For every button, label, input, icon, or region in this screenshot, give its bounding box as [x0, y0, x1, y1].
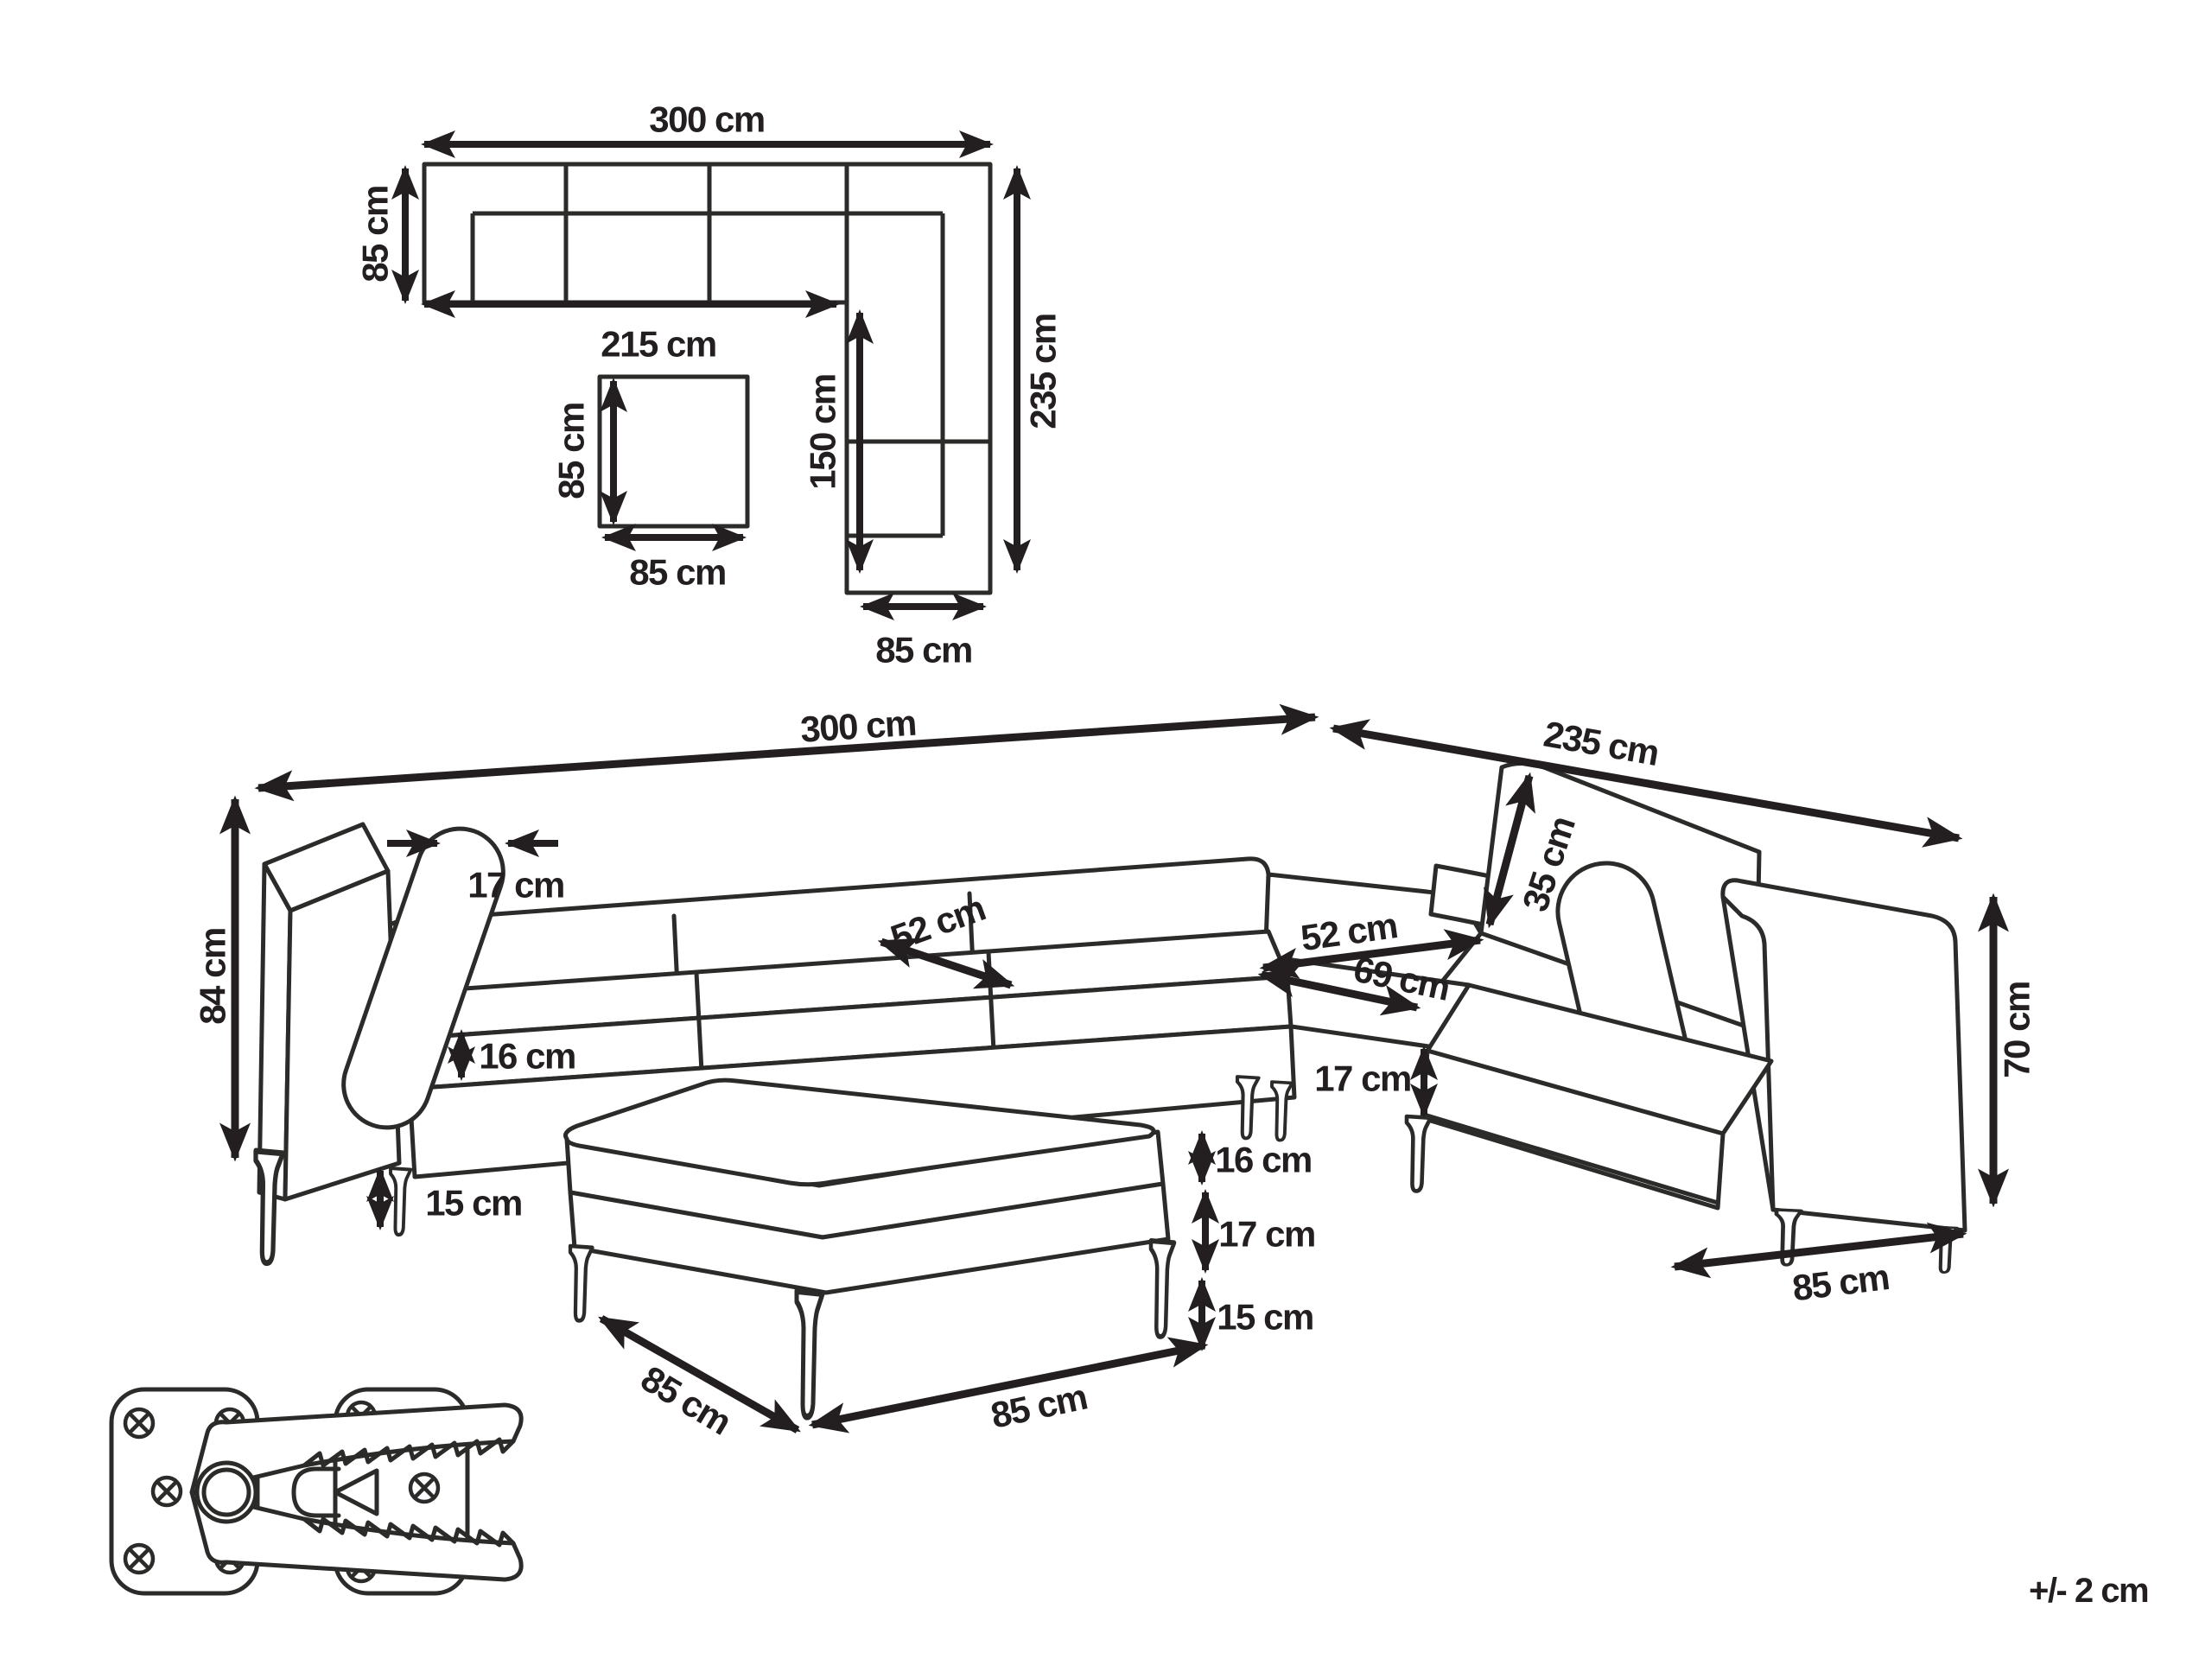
connector-hardware — [111, 1389, 521, 1593]
sofa-leg — [1272, 1082, 1292, 1141]
dim-label-height-total: 84 cm — [193, 928, 233, 1025]
dim-label-seat-base-height: 16 cm — [479, 1036, 575, 1077]
dim-label-ottoman-base-height: 17 cm — [1218, 1214, 1315, 1255]
dim-label-plan-ottoman-depth: 85 cm — [551, 403, 592, 499]
sofa-leg — [1407, 1116, 1431, 1191]
sofa-leg — [256, 1151, 283, 1263]
dim-label-plan-width-bottom: 85 cm — [875, 630, 972, 671]
dim-label-ottoman-cushion-height: 16 cm — [1215, 1140, 1312, 1180]
dim-label-armrest-height: 70 cm — [1997, 982, 2037, 1078]
plan-view: 300 cm 85 cm 215 cm 150 cm 235 cm 85 cm … — [355, 99, 1064, 671]
plan-ottoman-square — [600, 377, 747, 526]
dim-label-leg-height: 15 cm — [425, 1183, 522, 1224]
dim-arrow-width-total — [258, 717, 1315, 788]
sofa-dimension-diagram: 300 cm 85 cm 215 cm 150 cm 235 cm 85 cm … — [0, 0, 2212, 1659]
dim-arrow-side-width — [1675, 1234, 1963, 1267]
ottoman-leg — [1151, 1241, 1174, 1337]
dim-label-width-total: 300 cm — [799, 702, 917, 750]
sofa-right-armrest — [1723, 880, 1965, 1230]
ottoman-leg — [797, 1291, 823, 1417]
tolerance-note: +/- 2 cm — [2029, 1572, 2148, 1610]
dim-label-ottoman-leg-height: 15 cm — [1217, 1297, 1313, 1338]
dim-label-plan-inner-width: 215 cm — [601, 324, 715, 365]
sofa-leg — [1237, 1077, 1259, 1138]
dim-label-side-width: 85 cm — [1790, 1256, 1891, 1308]
dim-label-plan-inner-length: 150 cm — [803, 374, 843, 489]
dim-label-cushion-thickness: 17 cm — [467, 865, 564, 906]
dim-label-plan-ottoman-width: 85 cm — [629, 552, 726, 593]
clamp-slot — [294, 1469, 339, 1516]
dim-label-plan-depth-left: 85 cm — [355, 186, 396, 283]
sofa-leg — [391, 1168, 410, 1235]
ottoman-leg — [570, 1246, 593, 1320]
dim-label-plan-width-top: 300 cm — [649, 99, 764, 140]
dim-label-corner-base-height: 17 cm — [1314, 1058, 1411, 1099]
dim-label-plan-length-right: 235 cm — [1023, 314, 1064, 429]
perspective-view: 300 cm 235 cm 84 cm 17 cm 16 cm 15 cm 52… — [193, 702, 2037, 1442]
